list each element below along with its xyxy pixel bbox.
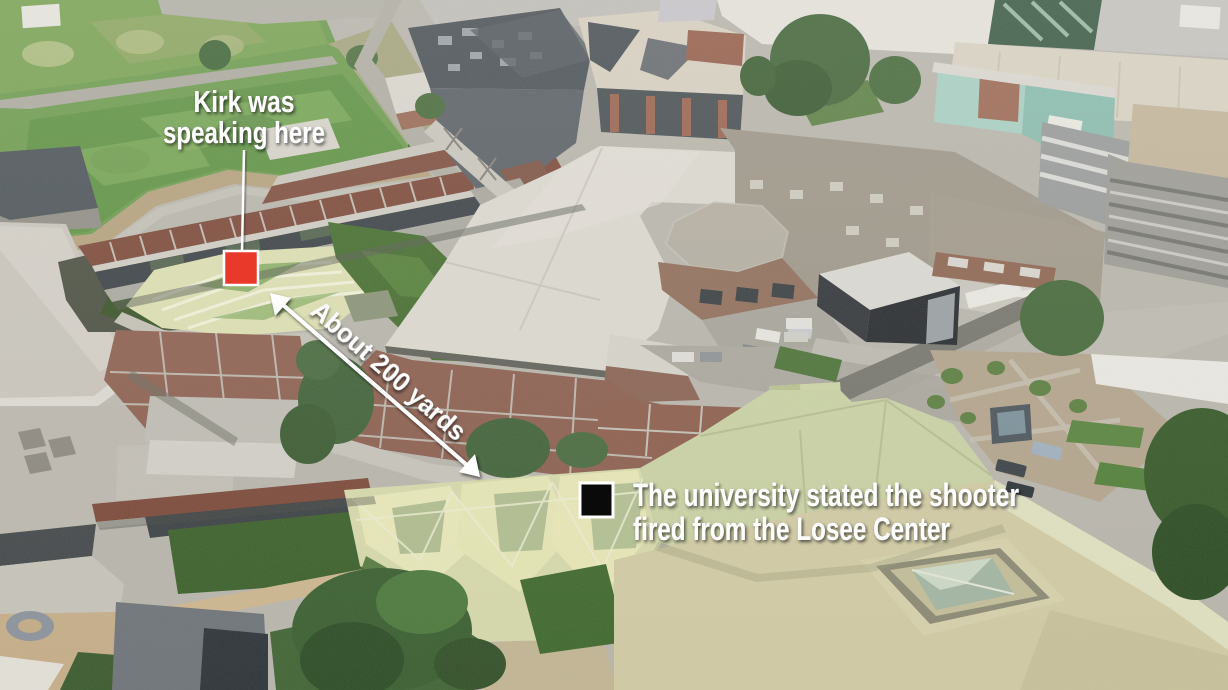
svg-text:The university stated the shoo: The university stated the shooter — [633, 477, 1019, 513]
svg-text:fired from the Losee Center: fired from the Losee Center — [633, 511, 950, 547]
svg-text:speaking here: speaking here — [163, 115, 325, 150]
svg-text:Kirk was: Kirk was — [194, 84, 295, 119]
